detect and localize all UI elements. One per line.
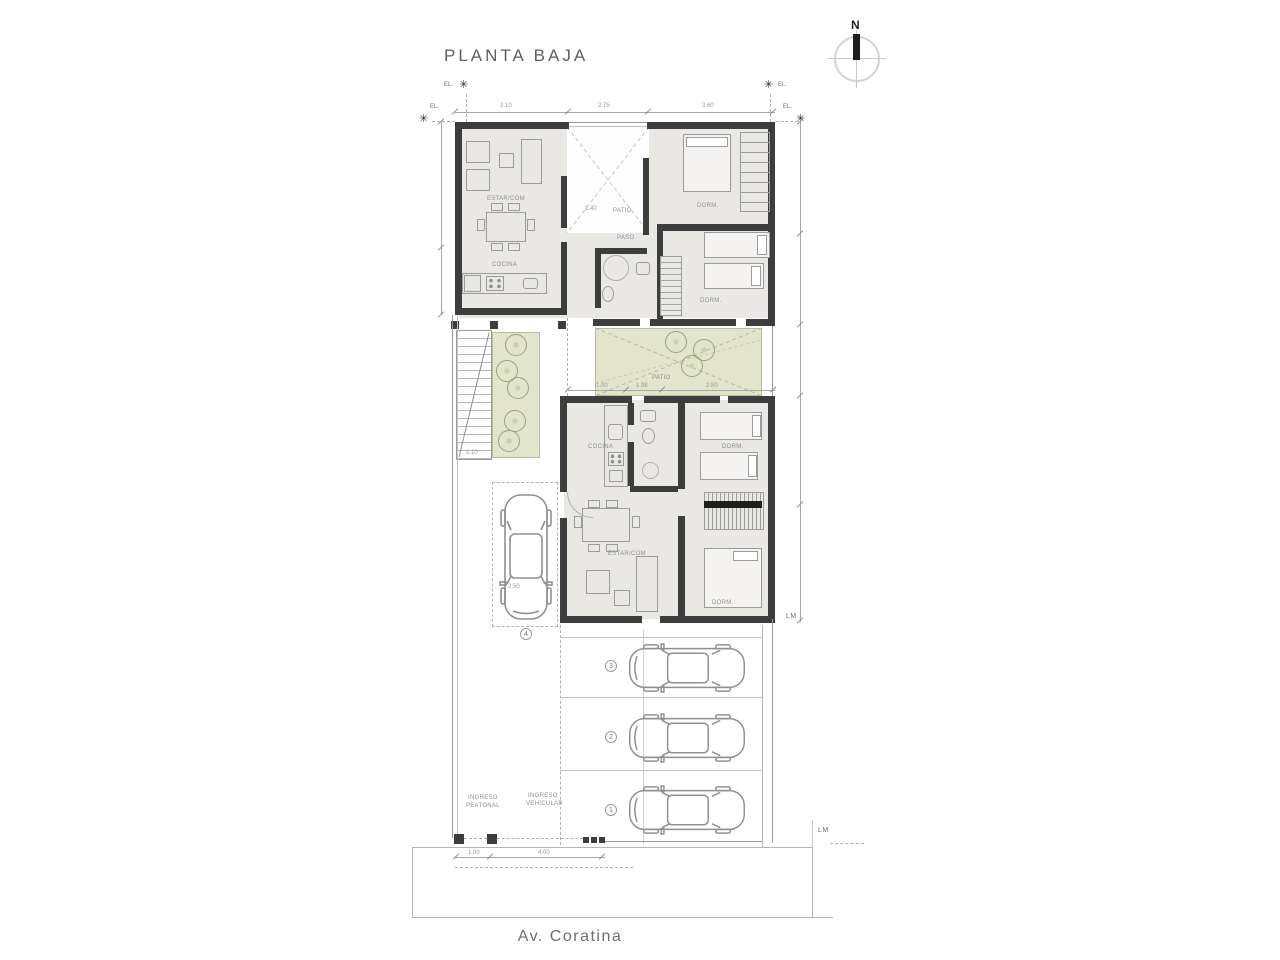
dim-text: 1.00 [596,383,608,389]
chair-symbol [527,219,535,231]
pillow-symbol [757,235,767,255]
lm-marker-label: LM [786,613,797,620]
washbasin-symbol [636,262,650,275]
chair-symbol [477,219,485,231]
dim-extension-line [455,867,633,868]
wall-segment [560,396,567,492]
wall-segment [560,616,642,623]
toilet-symbol [642,428,655,444]
room-label-dorm-upper-b: DORM. [700,298,722,304]
ingreso-vehicular-label: INGRESO [528,793,558,799]
ingreso-vehicular-label: VEHICULAR [526,801,563,807]
room-label-dorm-lower-b: DORM. [712,600,734,606]
ingreso-peatonal-label: INGRESO [468,795,498,801]
parking-separator [560,637,762,638]
room-label-cocina-upper: COCINA [492,262,517,268]
street-name: Av. Coratina [460,928,680,946]
sink-symbol [523,278,538,289]
column-post [558,321,566,329]
appliance-symbol [609,470,623,482]
pillow-symbol [686,137,728,147]
sofa-symbol [636,556,658,612]
pillow-symbol [752,415,761,437]
parking-separator [560,770,762,771]
room-label-dorm-lower-a: DORM. [722,444,744,450]
wall-segment [644,396,720,403]
el-leader-line [466,94,467,122]
car-symbol [624,644,750,692]
wall-segment [768,396,775,623]
column-post [490,321,498,329]
shower-symbol [642,462,659,479]
el-leader-line [776,121,798,122]
patio-edge-line [567,122,649,123]
dim-text: 1.40 [585,206,597,212]
chair-symbol [588,544,600,552]
north-arrow-icon [853,34,860,60]
shower-symbol [603,255,629,281]
tree-symbol [504,410,526,432]
el-marker-label: EL. [444,82,453,88]
grid-dash-line [567,318,568,396]
el-star-icon: ✳ [764,80,773,91]
wall-segment [678,516,685,623]
dim-text: 2.80 [706,383,718,389]
dim-text: 1.98 [636,383,648,389]
gate-post [599,837,605,843]
sink-symbol [608,424,623,440]
wall-segment [595,248,647,254]
wall-segment [643,158,649,235]
upper-patio-cross-lines [567,127,649,233]
lot-boundary-left [452,315,453,838]
tree-symbol [507,377,529,399]
stove-symbol [486,276,504,291]
chair-symbol [574,516,582,528]
room-label-paso: PASO [617,235,634,241]
chair-symbol [491,203,503,211]
gate-post [454,834,464,844]
toilet-symbol [602,286,614,302]
room-label-patio-upper: PATIO [613,208,632,214]
tree-symbol [498,430,520,452]
chair-symbol [588,500,600,508]
dim-tick [770,386,776,392]
el-marker-label: EL. [778,82,787,88]
parking-spot-number: 2 [605,731,617,743]
dim-text: 4.00 [538,850,550,856]
fridge-symbol [464,275,481,292]
lot-boundary-right [772,326,773,396]
chair-symbol [491,243,503,251]
parking-spot-number: 3 [605,660,617,672]
ingreso-peatonal-label: PEATONAL [466,803,500,809]
stairs-landing-bar [704,501,762,508]
el-leader-line [432,121,455,122]
parking-spot-number: 4 [520,628,532,640]
dim-text: 3.60 [702,103,714,109]
sidewalk-line [412,847,812,848]
stairs-direction-line [456,330,492,460]
wall-segment [746,319,775,326]
lot-boundary-left-inner [457,315,458,838]
closet-symbol [740,132,770,212]
dim-text: 2.75 [598,103,610,109]
dimension-line-top [455,112,775,113]
parking-spot-number: 1 [605,804,617,816]
room-label-cocina-lower: COCINA [588,444,613,450]
wall-segment [560,396,632,403]
room-label-estar-lower: ESTAR/COM [608,551,646,557]
wall-segment [647,122,775,129]
dim-text: 1.00 [468,850,480,856]
dimension-line-patio [567,390,775,391]
room-label-estar-upper: ESTAR/COM [487,196,525,202]
el-star-icon: ✳ [459,80,468,91]
wall-segment [455,308,567,315]
el-star-icon: ✳ [419,114,428,125]
stairs-symbol [660,256,682,316]
tree-symbol [665,331,687,353]
chair-symbol [606,500,618,508]
vehicular-gate-line [497,838,583,839]
dim-text: 3.10 [500,103,512,109]
coffee-table-symbol [614,590,630,606]
dining-table-symbol [486,212,526,242]
sofa-symbol [521,139,542,184]
chair-symbol [508,243,520,251]
parking-bay-edge [560,625,561,845]
el-marker-label: EL. [783,104,792,110]
pillow-symbol [748,455,757,477]
dim-tick [438,311,444,317]
wall-segment [595,248,601,308]
floor-plan-canvas: PLANTA BAJA N EL. ✳ EL. ✳ EL. ✳ EL. ✳ 3.… [0,0,1280,960]
dim-tick [797,617,803,623]
el-marker-label: EL. [430,104,439,110]
el-leader-line [770,94,771,122]
wall-segment [630,486,678,492]
dining-table-symbol [582,508,630,542]
car-symbol [624,714,750,762]
lm-leader-line [830,843,864,844]
wall-segment [561,242,567,308]
stove-symbol [608,452,624,466]
chair-symbol [632,516,640,528]
dimension-line-right [800,122,801,622]
interior-stairs-symbol [704,492,764,530]
pillow-symbol [733,551,758,561]
wall-segment [593,319,640,326]
wall-segment [678,403,685,489]
wall-segment [560,518,567,623]
dim-text: 1.10 [466,450,478,456]
street-edge-line [412,917,833,918]
lm-marker-label: LM [818,827,829,834]
dim-text: 2.50 [508,584,520,590]
wall-segment [650,319,736,326]
wall-segment [628,403,634,425]
armchair-symbol [586,570,610,594]
chair-symbol [508,203,520,211]
armchair-symbol [466,141,490,163]
site-patio-label: PATIO [652,375,671,381]
wall-segment [628,442,634,486]
front-fence-line [605,841,762,842]
wall-segment [455,122,569,129]
parking-separator [560,697,762,698]
dimension-line-left [441,122,442,315]
wall-segment [455,122,462,315]
patio-edge-line [567,126,649,127]
tree-symbol [505,334,527,356]
dimension-line-entry [455,857,605,858]
gate-post [487,834,497,844]
wall-segment [657,224,775,231]
coffee-table-symbol [499,153,514,168]
page-title: PLANTA BAJA [444,46,588,66]
parking-bay-edge [762,625,763,847]
sidewalk-line [412,847,413,917]
sidewalk-line [812,847,813,917]
pillow-symbol [751,266,761,286]
gate-post [591,837,597,843]
room-label-dorm-upper-a: DORM. [697,203,719,209]
gate-post [583,837,589,843]
washbasin-symbol [640,410,656,422]
car-symbol [624,786,750,834]
wall-segment [561,176,567,228]
car-symbol [500,492,552,622]
armchair-symbol [466,169,490,191]
lot-boundary-right [772,619,773,843]
tree-symbol [681,355,703,377]
pedestrian-gate-line [464,838,487,839]
